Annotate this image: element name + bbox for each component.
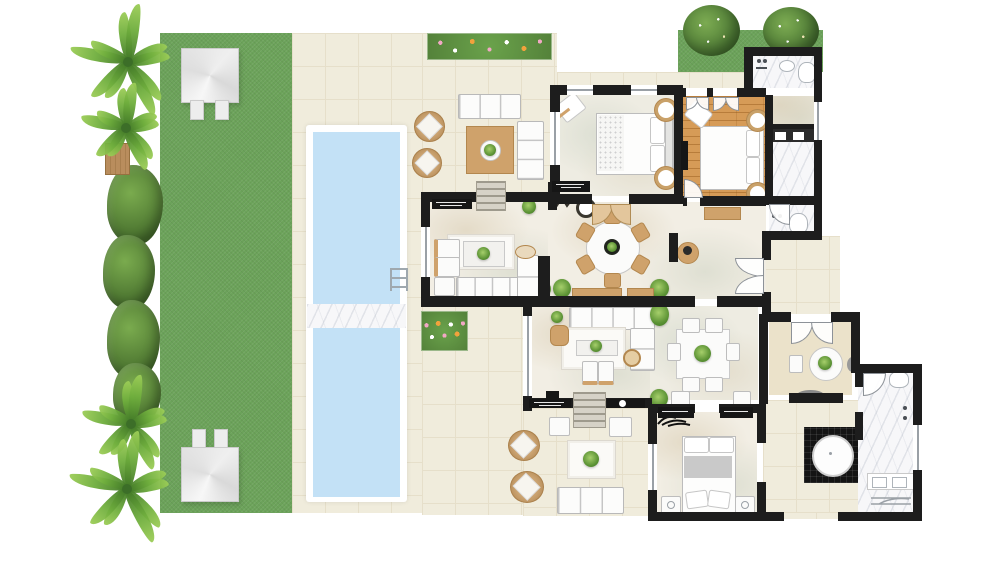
lounge-sofa [557,487,624,514]
palm-trunk [123,57,133,67]
wall [768,312,791,322]
bed-pillow [685,490,709,510]
tray-table [515,245,536,259]
wall [838,512,922,521]
potted-plant [583,451,599,467]
toilet [889,371,909,388]
wall [851,364,922,373]
window [567,85,593,95]
hedge [103,235,155,310]
window [523,316,532,396]
table-plant [818,356,832,370]
media-tv [607,399,645,408]
vanity-sink [775,132,786,140]
vanity-sink [793,132,804,140]
headboard [684,437,709,453]
entry-steps [476,181,506,211]
pool-upper-basin [313,132,400,304]
vanity-sink [892,477,907,488]
floor-plan [0,0,1000,563]
ottoman [582,361,598,385]
wall [762,240,771,260]
window [421,227,430,277]
pool-bridge [307,304,406,328]
bed-pillow [746,157,760,184]
gazebo-leg [215,100,229,120]
south-exit-path [783,512,838,519]
wall [669,233,678,262]
window [631,85,657,95]
wall [700,196,766,206]
tv-wall-unit [681,141,688,170]
rattan-chair [510,471,544,503]
nightstand-knob [741,501,749,509]
small-cabinet [546,391,559,399]
hall-bench [704,207,741,220]
wall [683,88,686,97]
towel-rail [869,495,913,507]
ottoman [598,361,614,385]
outdoor-sofa [517,121,544,180]
wall [765,124,814,129]
shower-control [903,416,907,420]
wall [789,393,843,403]
palm-trunk [122,484,132,494]
east-passage [763,236,840,314]
gazebo-bottom [181,447,239,502]
dining-chair [705,318,723,333]
flower-bed-top [427,33,552,60]
round-tub [812,435,854,477]
desk [658,407,694,418]
wall [762,231,822,240]
dining-chair [682,318,700,333]
nightstand-knob [667,501,675,509]
window [550,112,560,165]
flower-bed-poolside [421,311,468,351]
dining-chair [667,343,681,361]
potted-plant [477,247,490,260]
wall [421,192,430,227]
rattan-chair [414,111,445,142]
dining-chair [726,343,740,361]
shower-bar [756,67,767,69]
bedroom-console [552,181,590,192]
decor-bowl [683,246,692,255]
gazebo-leg [192,429,206,449]
bed-throw [598,115,624,171]
outdoor-sofa [458,94,521,119]
wall [757,482,766,521]
table-plant [607,242,617,252]
wall [550,85,567,95]
dining-chair [682,377,700,392]
bed-pillow [707,490,731,510]
potted-plant [484,144,496,156]
bush [683,5,740,56]
credenza [529,399,571,408]
wall [913,364,922,425]
side-table [549,417,570,436]
rattan-chair [412,148,442,178]
wall [421,277,430,307]
window [648,444,657,490]
window [913,425,922,470]
wall [737,88,766,97]
dining-chair [705,377,723,392]
window [814,102,822,140]
pool-lower-basin [313,328,400,497]
rattan-chair [508,430,540,461]
table-plant [590,340,602,352]
wall [629,194,683,204]
wall [744,47,822,56]
wall [814,140,822,232]
headboard [665,114,673,174]
dining-chair [604,273,621,288]
wall [593,85,631,95]
shower-control [903,406,907,410]
desk [720,407,753,418]
sideboard [432,199,472,209]
gazebo-leg [214,429,228,449]
wall [717,296,763,307]
speaker [619,400,626,407]
accent-chair [550,325,569,346]
terrace-steps [573,392,606,428]
wall [757,404,766,443]
bed-pillow [650,117,665,144]
wall [744,47,753,89]
armchair [434,239,460,259]
bed-blanket [684,456,732,478]
side-table [609,417,632,437]
wall [421,296,695,307]
palm-trunk [126,419,136,429]
armchair [434,257,460,277]
wall [648,490,657,521]
headboard [709,437,734,453]
bed-pillow [746,130,760,157]
wall [707,88,713,97]
hedge [107,165,163,245]
nook-chair [789,355,803,373]
pool-ladder [390,268,408,291]
wall [814,47,822,102]
wall [550,194,592,204]
palm-trunk [121,123,131,133]
vanity-sink [872,477,887,488]
table-plant [694,345,711,362]
living-sofa-return [517,255,539,300]
wall [759,314,768,404]
wall [538,256,550,298]
bathroom-sink [779,60,795,72]
shower-control [757,59,761,63]
wall [765,95,773,199]
ottoman [434,277,455,296]
wall [855,373,863,387]
shower-control [763,59,767,63]
flower-decor [551,311,563,323]
gazebo-top [181,48,239,103]
basket [623,349,641,367]
wall [855,412,863,440]
gazebo-leg [190,100,204,120]
tub-drain [829,452,832,455]
